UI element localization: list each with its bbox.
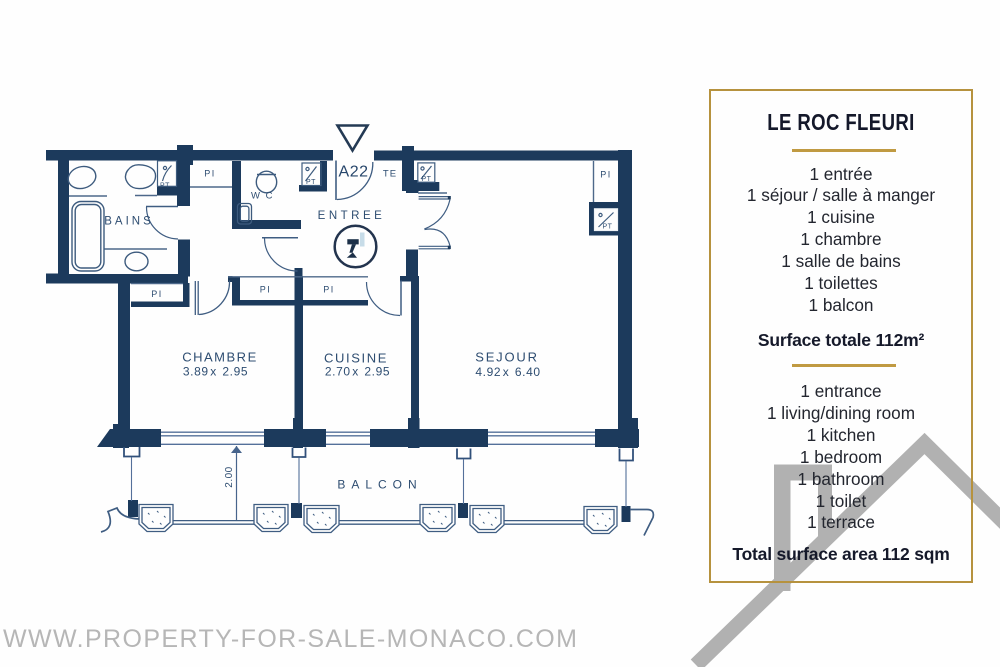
svg-text:CHAMBRE: CHAMBRE <box>182 350 258 365</box>
svg-text:PI: PI <box>204 169 216 179</box>
svg-text:A22: A22 <box>339 164 369 181</box>
svg-text:2.00: 2.00 <box>224 466 235 487</box>
svg-text:PT: PT <box>603 224 613 231</box>
svg-text:2.70 x 2.95: 2.70 x 2.95 <box>325 365 390 379</box>
svg-text:PI: PI <box>260 285 272 295</box>
svg-text:3.89 x 2.95: 3.89 x 2.95 <box>183 365 248 379</box>
svg-text:4.92 x 6.40: 4.92 x 6.40 <box>475 365 540 379</box>
svg-text:ENTREE: ENTREE <box>318 210 386 222</box>
svg-text:PT: PT <box>422 176 432 183</box>
svg-text:W C: W C <box>251 191 274 202</box>
svg-text:PI: PI <box>323 285 335 295</box>
svg-text:PI: PI <box>600 170 612 180</box>
svg-text:TE: TE <box>383 169 397 180</box>
svg-text:PT: PT <box>160 183 170 190</box>
svg-text:PT: PT <box>306 179 316 186</box>
svg-text:SEJOUR: SEJOUR <box>475 350 539 365</box>
svg-text:CUISINE: CUISINE <box>324 351 388 366</box>
svg-text:BAINS: BAINS <box>104 216 154 228</box>
svg-text:PI: PI <box>151 289 163 299</box>
svg-text:BALCON: BALCON <box>337 478 422 492</box>
